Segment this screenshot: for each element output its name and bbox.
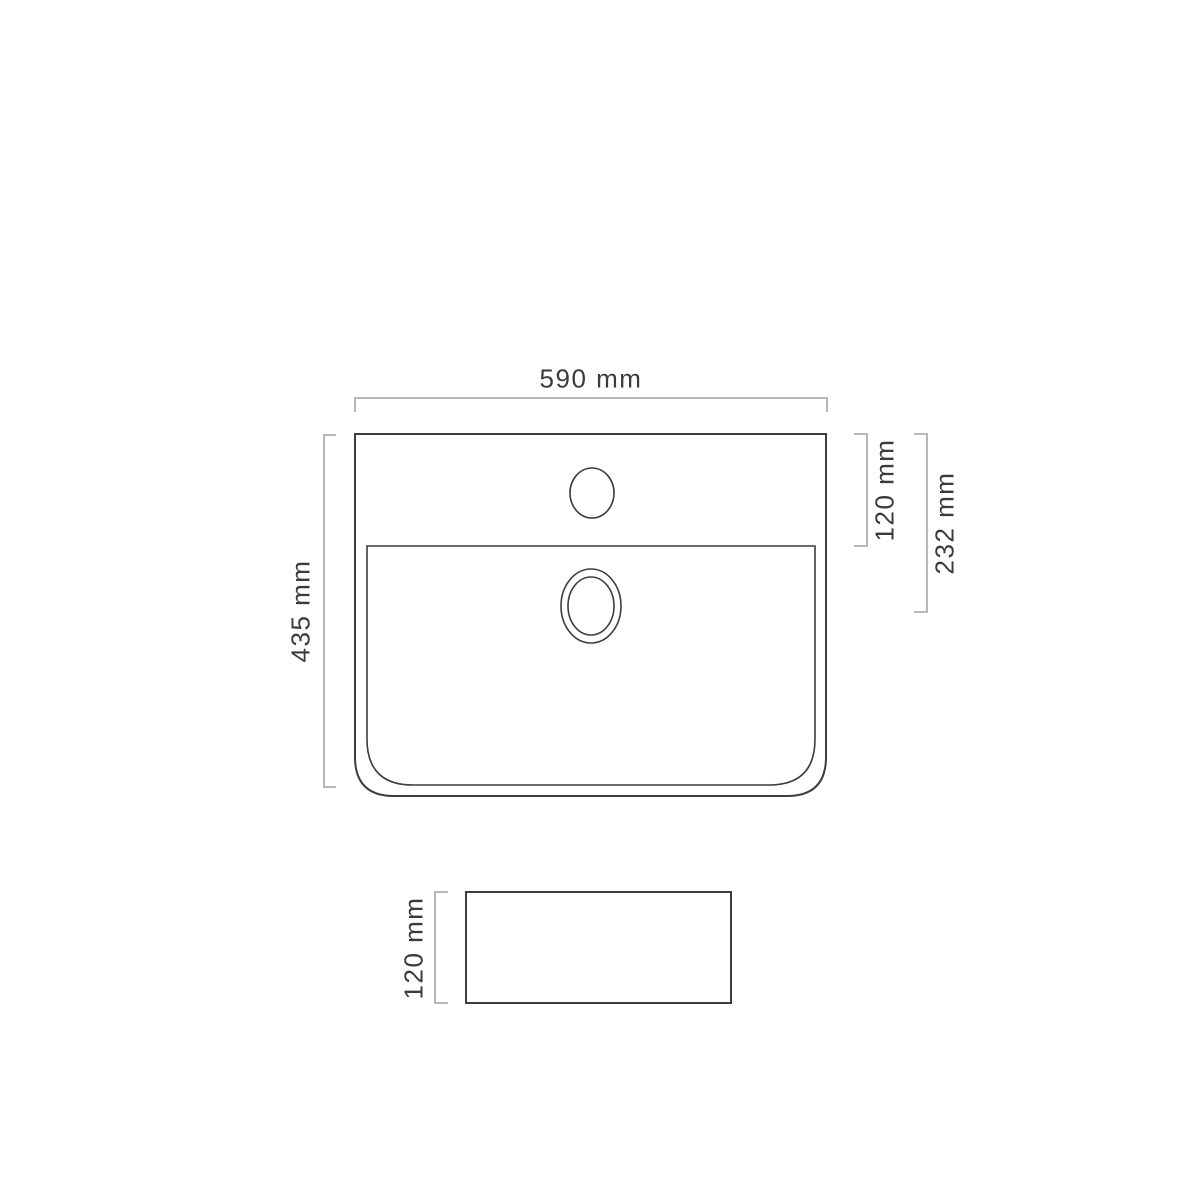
ledge-depth-dimension-label: 120 mm: [870, 439, 901, 542]
basin-inner-bowl: [367, 546, 815, 785]
faucet-hole: [570, 468, 614, 518]
dimension-line-side-height: [435, 892, 448, 1003]
side-profile-rect: [466, 892, 731, 1003]
drain-hole-inner: [568, 577, 614, 635]
dimension-line-drain-center: [914, 434, 927, 612]
dimension-line-ledge-depth: [854, 434, 867, 546]
side-height-dimension-label: 120 mm: [399, 897, 430, 1000]
width-dimension-label: 590 mm: [540, 364, 643, 395]
side-view: [466, 892, 731, 1003]
basin-outer-rim: [355, 434, 826, 796]
dimension-line-width: [355, 398, 827, 412]
drain-hole-outer: [561, 569, 621, 643]
technical-drawing-page: 590 mm 435 mm 120 mm 232 mm 120 mm: [0, 0, 1200, 1200]
dimension-line-height: [324, 435, 336, 787]
top-view: [355, 434, 826, 796]
drain-center-dimension-label: 232 mm: [930, 472, 961, 575]
height-dimension-label: 435 mm: [286, 560, 317, 663]
washbasin-drawing: [0, 0, 1200, 1200]
